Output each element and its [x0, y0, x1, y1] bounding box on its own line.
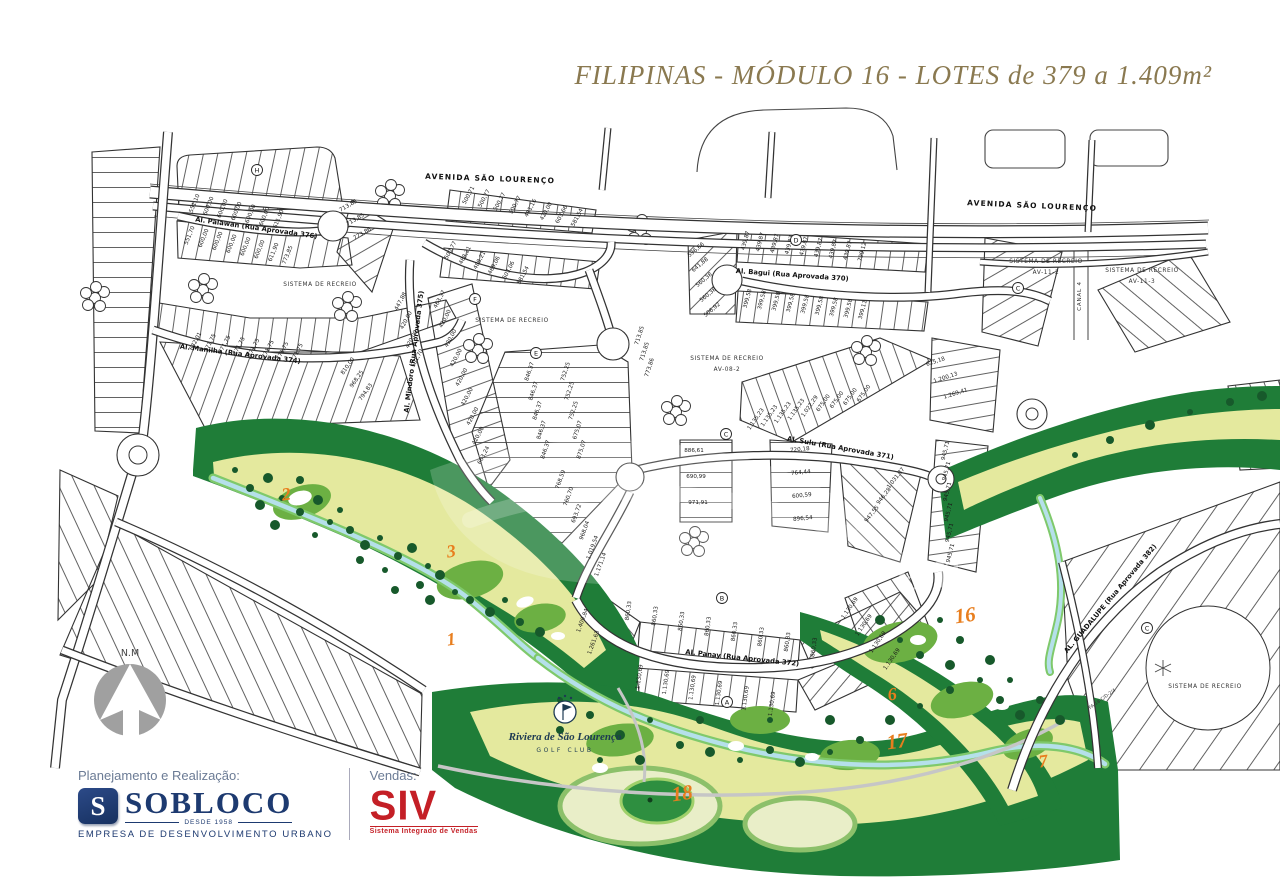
- tree: [516, 618, 524, 626]
- golf-hole-number: 1: [445, 629, 457, 650]
- tree: [825, 715, 835, 725]
- lot-area-label: 860,33: [651, 606, 660, 627]
- sales-label: Vendas:: [370, 768, 478, 783]
- recreation-label: SISTEMA DE RECREIO: [1009, 259, 1083, 265]
- tree: [856, 736, 864, 744]
- golf-hole-number: 18: [670, 780, 695, 807]
- tree: [597, 757, 603, 763]
- recreation-label: SISTEMA DE RECREIO: [690, 356, 764, 362]
- tree: [416, 581, 424, 589]
- tree: [1145, 420, 1155, 430]
- tree-outline: [852, 342, 863, 353]
- tree-outline: [83, 300, 94, 311]
- tree: [360, 540, 370, 550]
- tree-outline: [203, 293, 214, 304]
- tree: [705, 747, 715, 757]
- footer-divider: [349, 768, 350, 840]
- emblem-crown-dot: [558, 697, 560, 699]
- emblem-crown-dot: [564, 695, 566, 697]
- tree: [425, 595, 435, 605]
- tree-outline: [672, 396, 683, 407]
- tree-outline: [386, 180, 397, 191]
- recreation-code: AV-08-2: [714, 367, 741, 373]
- golf-hole-number: 17: [885, 728, 911, 755]
- sobloco-name: SOBLOCO: [125, 788, 292, 818]
- sales-block: Vendas: SIV Sistema Integrado de Vendas: [366, 768, 478, 835]
- tree: [312, 532, 318, 538]
- golf-pond: [745, 798, 855, 850]
- tree: [885, 715, 895, 725]
- golf-club-subtitle: GOLF CLUB: [536, 747, 593, 754]
- tree-outline: [676, 415, 687, 426]
- sobloco-logo: S SOBLOCO DESDE 1958: [78, 788, 333, 826]
- planning-label: Planejamento e Realização:: [78, 768, 333, 783]
- tree-outline: [335, 310, 346, 321]
- tree: [466, 596, 474, 604]
- road-surface: [928, 138, 934, 292]
- developer-block: Planejamento e Realização: S SOBLOCO DES…: [78, 768, 333, 840]
- tree: [1226, 398, 1234, 406]
- block-letter: C: [1145, 624, 1150, 632]
- tree: [766, 746, 774, 754]
- tree: [767, 717, 773, 723]
- block-letter: B: [720, 594, 724, 602]
- tree: [337, 507, 343, 513]
- compass-label: N.M: [121, 648, 139, 659]
- tree: [377, 535, 383, 541]
- tree: [1007, 677, 1013, 683]
- sobloco-since: DESDE 1958: [125, 819, 292, 826]
- block-letter: F: [473, 295, 477, 303]
- top-center-block-outline: [697, 108, 897, 172]
- lot-block: [1098, 252, 1230, 352]
- tree: [916, 651, 924, 659]
- plan-page: { "title": "FILIPINAS - MÓDULO 16 - LOTE…: [0, 0, 1280, 892]
- tree-outline: [91, 282, 102, 293]
- cul-de-sac: [597, 328, 629, 360]
- tree: [945, 660, 955, 670]
- block-letter: H: [255, 166, 260, 174]
- tree: [394, 552, 402, 560]
- tree: [985, 655, 995, 665]
- fan-center: [1146, 606, 1270, 730]
- tree: [255, 500, 265, 510]
- tree-outline: [189, 280, 200, 291]
- tree: [502, 597, 508, 603]
- tree: [1106, 436, 1114, 444]
- top-right-block: [985, 130, 1065, 168]
- tree-outline: [343, 292, 354, 303]
- recreation-label: SISTEMA DE RECREIO: [1168, 684, 1242, 690]
- tree: [795, 757, 805, 767]
- emblem-crown-dot: [570, 697, 572, 699]
- tree: [485, 607, 495, 617]
- tree: [996, 696, 1004, 704]
- tree: [296, 508, 304, 516]
- tree: [737, 757, 743, 763]
- tree-outline: [474, 334, 485, 345]
- tree: [937, 617, 943, 623]
- tree: [1072, 452, 1078, 458]
- tree: [647, 717, 653, 723]
- tree: [1187, 409, 1193, 415]
- lot-area-label: 971,91: [688, 500, 708, 506]
- lot-area-label: 773,86: [644, 357, 656, 378]
- block-letter: E: [534, 349, 538, 357]
- top-right-block: [1090, 130, 1168, 166]
- recreation-code: AV-11-3: [1129, 279, 1156, 285]
- tree: [425, 563, 431, 569]
- tree: [327, 519, 333, 525]
- tree: [1015, 710, 1025, 720]
- sobloco-tagline: EMPRESA DE DESENVOLVIMENTO URBANO: [78, 829, 333, 840]
- siv-logo: SIV: [370, 787, 478, 825]
- tree-outline: [478, 353, 489, 364]
- tree-outline: [466, 352, 477, 363]
- block-letter: C: [724, 430, 729, 438]
- tree-outline: [199, 274, 210, 285]
- tree: [1257, 391, 1267, 401]
- tree-outline: [333, 298, 344, 309]
- tree-outline: [664, 414, 675, 425]
- tree: [946, 686, 954, 694]
- hole-18-pin: [648, 798, 653, 803]
- golf-green: [730, 706, 790, 734]
- tree: [391, 586, 399, 594]
- tree: [296, 476, 304, 484]
- block-letter: C: [1016, 284, 1021, 292]
- golf-hole-number: 16: [953, 602, 978, 629]
- tree: [270, 520, 280, 530]
- tree: [382, 567, 388, 573]
- tree: [535, 627, 545, 637]
- tree: [827, 749, 833, 755]
- tree: [917, 703, 923, 709]
- tree-outline: [464, 340, 475, 351]
- recreation-code: AV-11-2: [1033, 270, 1060, 276]
- lot-area-label: 690,99: [686, 474, 706, 480]
- tree: [246, 484, 254, 492]
- tree: [696, 716, 704, 724]
- avenue-label: AVENIDA SÃO LOURENÇO: [967, 198, 1097, 213]
- tree: [676, 741, 684, 749]
- tree-outline: [862, 336, 873, 347]
- road-surface: [602, 128, 608, 190]
- site-map: em AVENIDA SÃO LOURENÇO AVENIDA SÃO LOUR…: [0, 0, 1280, 892]
- tree: [346, 526, 354, 534]
- tree: [635, 755, 645, 765]
- tree-outline: [81, 288, 92, 299]
- sobloco-icon: S: [78, 788, 118, 824]
- block-letter: A: [725, 698, 730, 706]
- tree-outline: [95, 301, 106, 312]
- recreation-label: SISTEMA DE RECREIO: [475, 318, 549, 324]
- sobloco-initial: S: [90, 791, 105, 822]
- lot-block: [930, 338, 1000, 432]
- tree: [407, 543, 417, 553]
- golf-club-name: Riviera de São Lourenço: [508, 731, 622, 743]
- block-letter: D: [793, 236, 798, 244]
- tree: [1055, 715, 1065, 725]
- roundabout-island: [1026, 408, 1038, 420]
- lot-block: [740, 338, 932, 442]
- tree: [232, 467, 238, 473]
- tree: [875, 615, 885, 625]
- tree: [977, 677, 983, 683]
- footer: Planejamento e Realização: S SOBLOCO DES…: [78, 768, 478, 840]
- cul-de-sac: [318, 211, 348, 241]
- tree: [897, 637, 903, 643]
- canal-label: CANAL 4: [1077, 281, 1083, 311]
- tree-outline: [866, 355, 877, 366]
- tree: [956, 636, 964, 644]
- tree-outline: [347, 311, 358, 322]
- tree-outline: [662, 402, 673, 413]
- tree-outline: [191, 292, 202, 303]
- lot-area-label: 886,61: [684, 448, 704, 454]
- avenue-label: AVENIDA SÃO LOURENÇO: [425, 172, 555, 186]
- recreation-label: SISTEMA DE RECREIO: [1105, 268, 1179, 274]
- tree: [313, 495, 323, 505]
- roundabout-island: [129, 446, 147, 464]
- tree: [452, 589, 458, 595]
- tree-outline: [854, 354, 865, 365]
- emblem-ring: [554, 701, 576, 723]
- tree: [356, 556, 364, 564]
- recreation-label: SISTEMA DE RECREIO: [283, 282, 357, 288]
- tree: [435, 570, 445, 580]
- tree: [586, 711, 594, 719]
- tree-outline: [376, 186, 387, 197]
- tree: [263, 473, 273, 483]
